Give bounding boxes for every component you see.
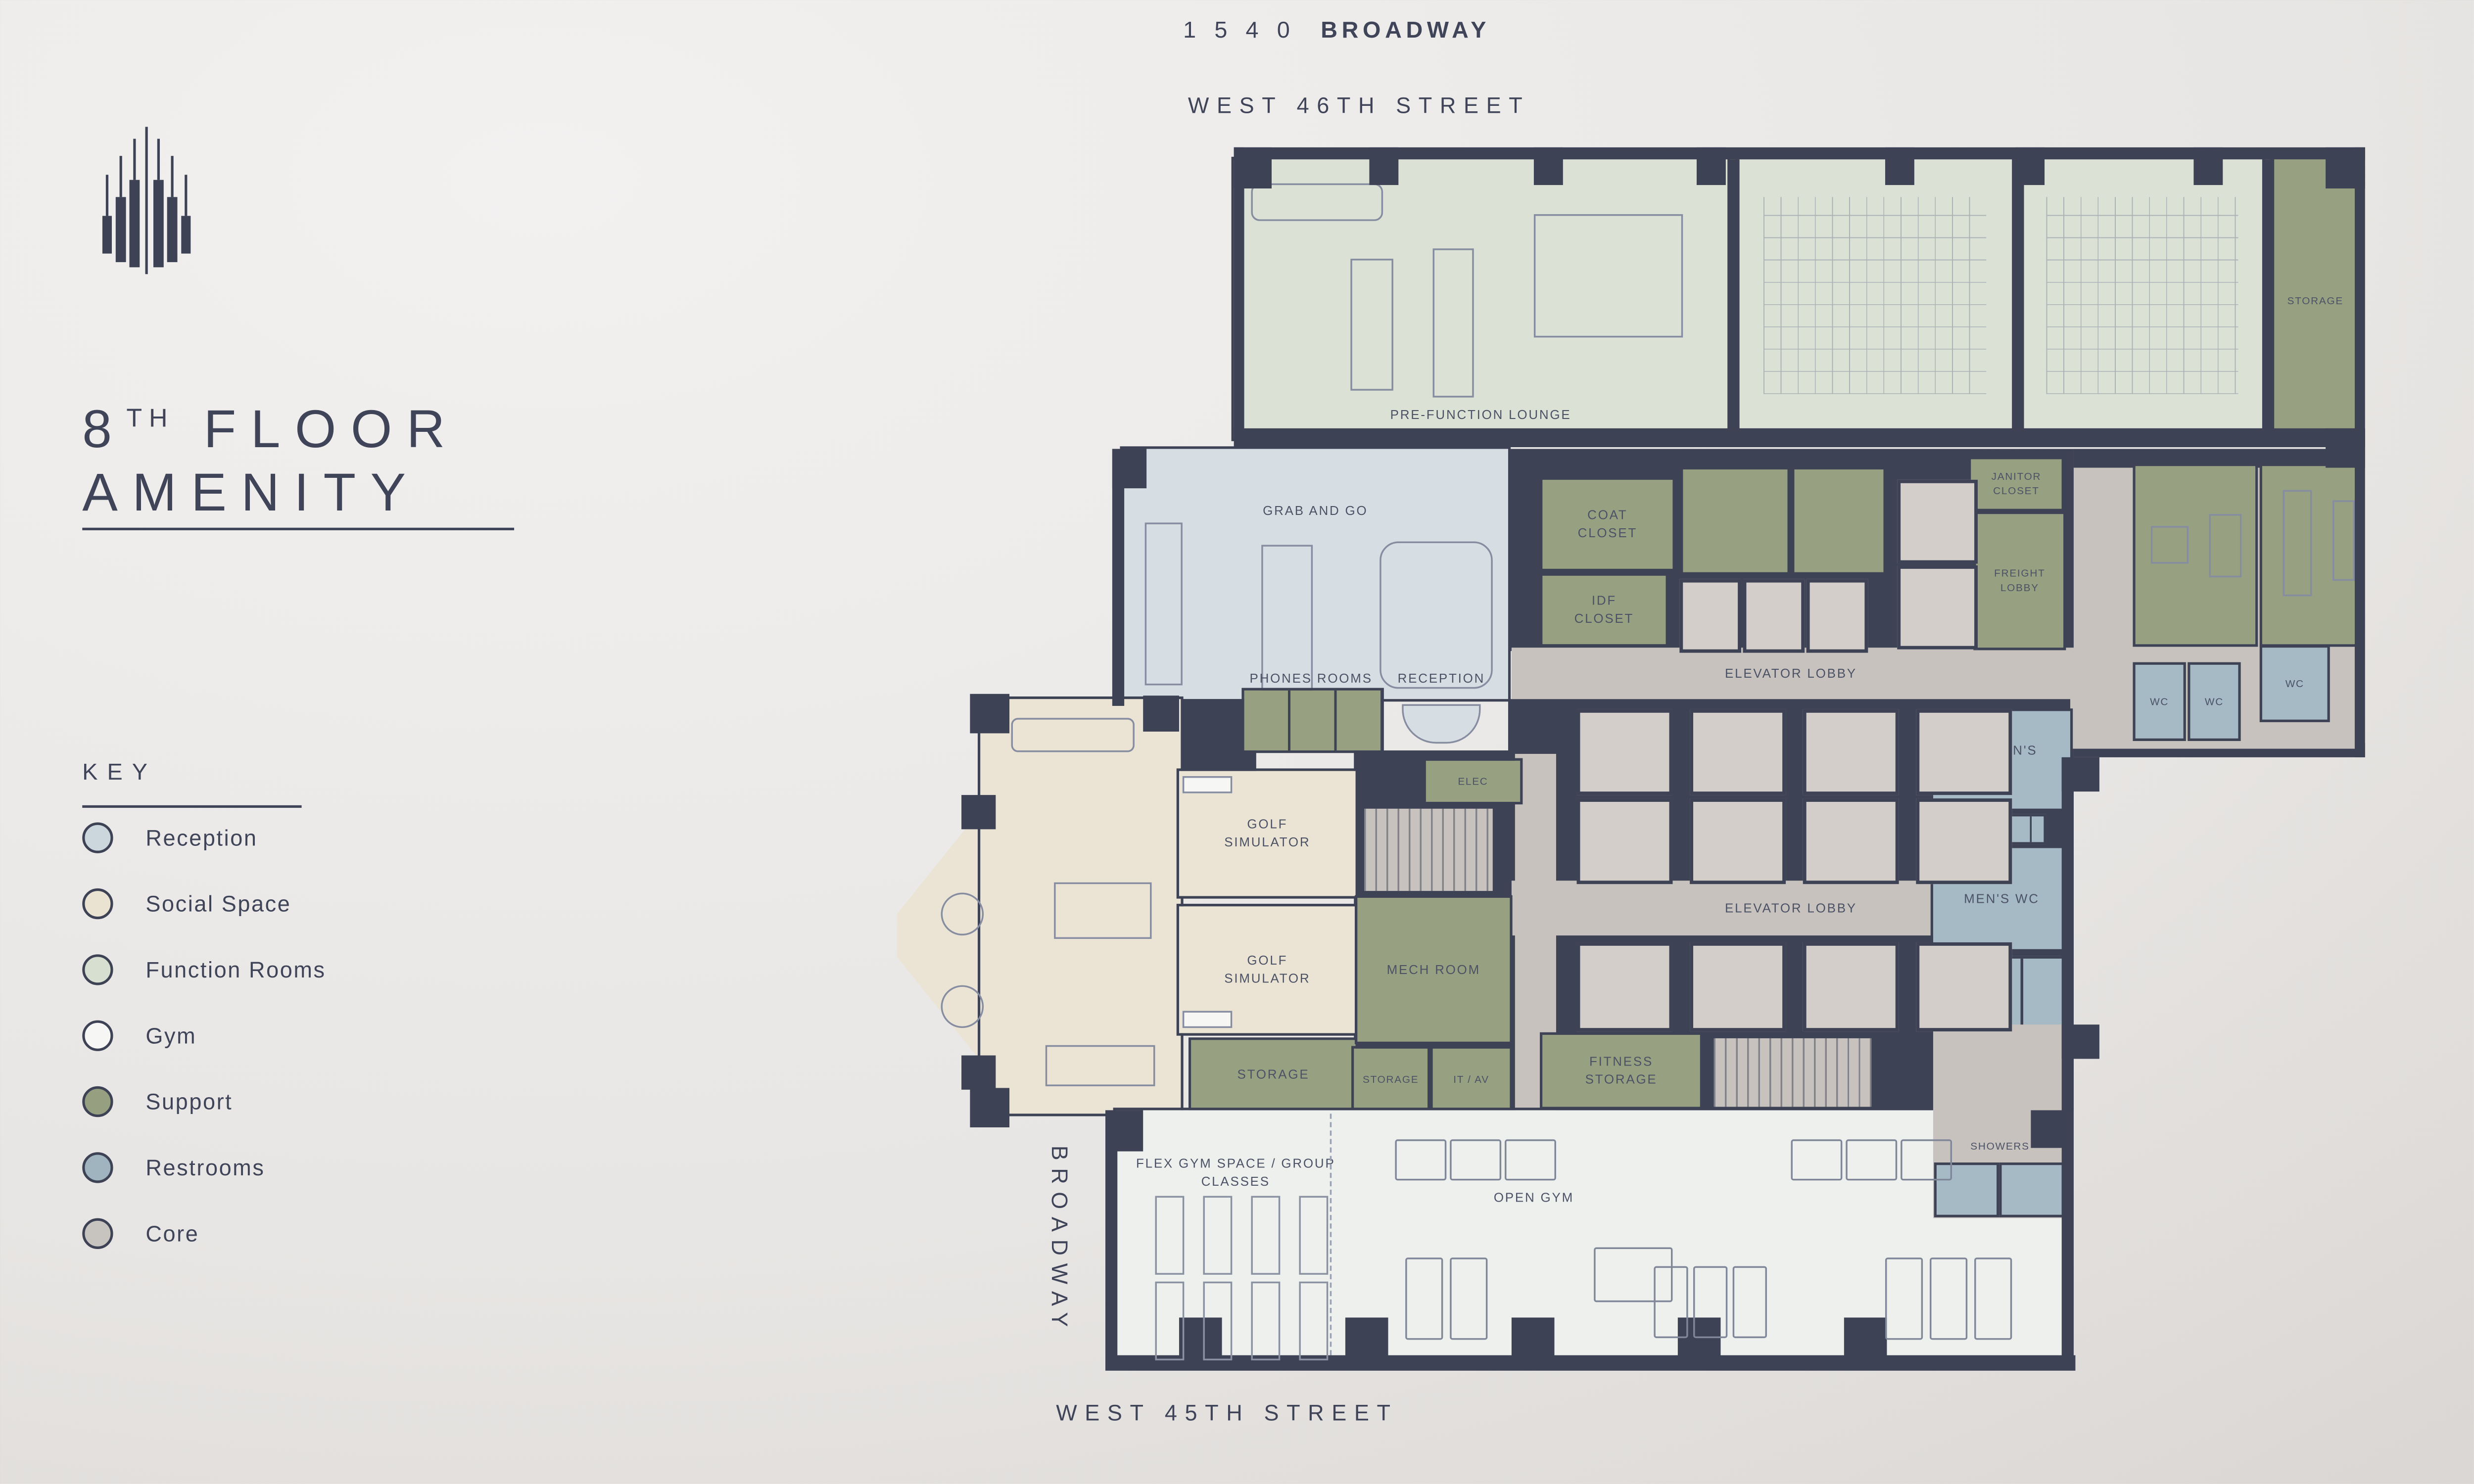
column: [961, 1056, 996, 1090]
gym-equipment: [1450, 1139, 1501, 1180]
stairs-upper: [1364, 809, 1493, 891]
room-label-mech-room: MECH ROOM: [1386, 961, 1480, 978]
gym-equipment: [1901, 1139, 1952, 1180]
room-it-av: IT / AV: [1433, 1049, 1510, 1111]
room-storage-small: STORAGE: [1354, 1049, 1427, 1111]
room-label-janitor-closet: JANITOR CLOSET: [1978, 469, 2055, 498]
column: [970, 1088, 1009, 1127]
page-title-line2: AMENITY: [82, 462, 460, 525]
wall-segment: [2012, 159, 2024, 430]
room-storage-social: STORAGE: [1191, 1040, 1356, 1109]
room-function-room-1: [1738, 159, 2012, 428]
gym-mat: [1155, 1282, 1184, 1360]
furniture-round-table: [941, 893, 984, 936]
furniture-lounge-seating: [1380, 541, 1493, 689]
column: [1369, 147, 1398, 185]
room-golf-simulator-1: GOLF SIMULATOR: [1179, 771, 1356, 896]
room-label-golf-simulator-1: GOLF SIMULATOR: [1216, 816, 1319, 852]
golf-screen: [1183, 1011, 1232, 1028]
room-label-pre-function-lounge: PRE-FUNCTION LOUNGE: [1374, 406, 1588, 424]
elevator-car: [1807, 579, 1868, 653]
floor-word: FLOOR: [204, 400, 460, 459]
elevator-car: [1916, 798, 2012, 884]
room-grab-and-go: GRAB AND GO: [1123, 449, 1508, 699]
furniture-cabinet: [2209, 514, 2242, 577]
elevator-car: [1743, 579, 1805, 653]
gym-equipment: [1930, 1257, 1967, 1340]
key-swatch-reception: [82, 823, 113, 853]
room-fitness-storage: FITNESS STORAGE: [1542, 1035, 1700, 1107]
column: [1512, 1318, 1555, 1357]
room-pre-function-lounge: PRE-FUNCTION LOUNGE: [1234, 159, 1728, 439]
key-swatch-social-space: [82, 888, 113, 919]
address-number: 1 5 4 0: [1183, 17, 1296, 43]
room-wc-3: WC: [2262, 648, 2328, 719]
stairs-lower: [1714, 1038, 1872, 1107]
furniture-reception-desk: [1402, 704, 1480, 744]
gym-equipment: [1654, 1266, 1688, 1338]
page-title: 8TH FLOOR AMENITY: [82, 387, 460, 525]
elevator-car: [1803, 798, 1899, 884]
gym-equipment: [1885, 1257, 1923, 1340]
room-coat-closet: COAT CLOSET: [1542, 480, 1672, 569]
furniture-table: [1054, 882, 1151, 939]
gym-equipment: [1395, 1139, 1446, 1180]
room-label-flex-gym: FLEX GYM SPACE / GROUP CLASSES: [1133, 1155, 1338, 1191]
column: [1105, 1110, 1143, 1151]
wall-segment: [2062, 757, 2074, 1369]
building-logo-icon: [82, 127, 211, 281]
elevator-car: [1803, 709, 1899, 795]
room-label-wc-1: WC: [2150, 695, 2169, 709]
gym-equipment: [1693, 1266, 1727, 1338]
room-label-mens-wc: MEN'S WC: [1959, 889, 2045, 907]
column: [2015, 147, 2045, 185]
room-label-storage-top: STORAGE: [2287, 293, 2343, 308]
elevator-car: [1690, 942, 1786, 1031]
room-label-open-gym: OPEN GYM: [1448, 1189, 1619, 1207]
room-label-golf-simulator-2: GOLF SIMULATOR: [1216, 952, 1319, 988]
gym-mat: [1299, 1196, 1328, 1275]
gym-mat: [1203, 1282, 1232, 1360]
wall-segment: [1234, 147, 1244, 449]
corridor-elevator-lobby-upper: ELEVATOR LOBBY: [1512, 648, 2070, 699]
room-label-fitness-storage: FITNESS STORAGE: [1574, 1053, 1668, 1089]
room-wc-1: WC: [2136, 665, 2184, 739]
room-shower-2: [2001, 1165, 2061, 1214]
elevator-car: [1679, 579, 1741, 653]
furniture-counter: [2332, 500, 2355, 581]
gym-divider: [1330, 1113, 1332, 1355]
room-elec: ELEC: [1426, 761, 1520, 802]
key-underline: [82, 805, 301, 808]
wall-segment: [1727, 428, 2365, 447]
gym-mat: [1251, 1282, 1280, 1360]
room-label-reception: RECEPTION: [1356, 670, 1527, 688]
gym-equipment: [1733, 1266, 1767, 1338]
column: [2062, 1024, 2099, 1059]
room-label-freight-lobby: FREIGHT LOBBY: [1986, 566, 2054, 595]
column: [1844, 1318, 1887, 1357]
wall-segment: [1234, 428, 1731, 447]
column: [2326, 147, 2365, 188]
room-golf-simulator-2: GOLF SIMULATOR: [1179, 906, 1356, 1033]
key-swatch-function-rooms: [82, 954, 113, 985]
room-label-coat-closet: COAT CLOSET: [1569, 506, 1646, 542]
elevator-car: [1803, 942, 1899, 1031]
room-mech: MECH ROOM: [1357, 898, 1510, 1042]
elevator-car: [1690, 709, 1786, 795]
building-address: 1 5 4 0 BROADWAY: [994, 17, 1679, 44]
key-label: Core: [145, 1220, 199, 1247]
floor-ordinal: TH: [126, 404, 174, 432]
elevator-car: [1577, 709, 1673, 795]
room-storage-top: STORAGE: [2273, 159, 2358, 442]
title-underline: [82, 528, 514, 530]
gym-equipment: [1450, 1257, 1487, 1340]
room-janitor-closet: JANITOR CLOSET: [1971, 459, 2062, 509]
gym-equipment: [1974, 1257, 2012, 1340]
key-label: Reception: [145, 825, 257, 851]
furniture-bar: [1251, 184, 1383, 221]
page-title-line1: 8TH FLOOR: [82, 387, 460, 462]
key-label: Support: [145, 1088, 233, 1115]
column: [2062, 757, 2099, 791]
address-name: BROADWAY: [1321, 17, 1490, 43]
room-freight-lobby: FREIGHT LOBBY: [1976, 514, 2064, 648]
room-label-elevator-lobby-lower: ELEVATOR LOBBY: [1705, 899, 1876, 917]
key-item-reception: Reception: [82, 823, 257, 853]
column: [2031, 1110, 2065, 1148]
column: [1143, 696, 1179, 732]
gym-equipment: [1405, 1257, 1443, 1340]
gym-equipment: [1791, 1139, 1842, 1180]
floor-number: 8: [82, 400, 126, 459]
column: [970, 694, 1009, 734]
column: [1112, 449, 1146, 488]
room-label-idf-closet: IDF CLOSET: [1566, 592, 1643, 628]
room-label-elec: ELEC: [1458, 774, 1488, 788]
room-label-grab-and-go: GRAB AND GO: [1204, 502, 1427, 520]
gym-mat: [1299, 1282, 1328, 1360]
furniture-counter: [2283, 490, 2312, 597]
room-label-storage-social: STORAGE: [1237, 1065, 1309, 1083]
column: [2326, 428, 2365, 468]
elevator-car: [1916, 709, 2012, 795]
elevator-car: [1897, 565, 1978, 649]
key-item-social-space: Social Space: [82, 888, 291, 919]
key-label: Social Space: [145, 890, 291, 917]
room-support-a: [1683, 469, 1787, 572]
room-pantry: [2262, 466, 2362, 644]
key-label: Gym: [145, 1022, 196, 1049]
room-phones-rooms: [1244, 691, 1381, 750]
key-item-gym: Gym: [82, 1020, 196, 1051]
key-swatch-core: [82, 1218, 113, 1249]
room-social-space-bay-window: [891, 802, 987, 1069]
key-label: Restrooms: [145, 1155, 265, 1181]
wall-segment: [2074, 449, 2362, 467]
furniture-counter: [1145, 522, 1183, 685]
room-label-it-av: IT / AV: [1453, 1072, 1489, 1087]
furniture-table: [1433, 248, 1474, 397]
key-item-support: Support: [82, 1086, 233, 1117]
wall-segment: [1727, 159, 1739, 430]
gym-equipment: [1505, 1139, 1556, 1180]
furniture-round-table: [941, 985, 984, 1028]
gym-mat: [1203, 1196, 1232, 1275]
room-social-space: [980, 699, 1181, 1113]
room-label-wc-2: WC: [2205, 695, 2224, 709]
column: [2193, 147, 2223, 185]
elevator-car: [1897, 480, 1978, 564]
room-function-room-2: [2022, 159, 2262, 428]
column: [1234, 147, 1272, 188]
key-title: KEY: [82, 759, 157, 786]
elevator-car: [1577, 942, 1673, 1031]
room-wc-2: WC: [2190, 665, 2238, 739]
key-swatch-gym: [82, 1020, 113, 1051]
elevator-car: [1577, 798, 1673, 884]
furniture-seating-rows: [1763, 197, 1986, 394]
column: [1345, 1318, 1388, 1357]
furniture-table: [2151, 526, 2189, 563]
street-label-west-45th: WEST 45TH STREET: [970, 1400, 1484, 1427]
column: [1885, 147, 1914, 185]
gym-equipment: [1846, 1139, 1897, 1180]
room-idf-closet: IDF CLOSET: [1542, 576, 1665, 645]
key-label: Function Rooms: [145, 957, 326, 983]
gym-mat: [1251, 1196, 1280, 1275]
key-item-core: Core: [82, 1218, 199, 1249]
golf-screen: [1183, 776, 1232, 793]
key-item-function-rooms: Function Rooms: [82, 954, 326, 985]
column: [1697, 147, 1726, 185]
furniture-communal-table: [1261, 545, 1313, 690]
column: [1534, 147, 1563, 185]
gym-mat: [1155, 1196, 1184, 1275]
furniture-sofa-group: [1534, 214, 1683, 337]
furniture-table: [1350, 259, 1393, 391]
elevator-car: [1690, 798, 1786, 884]
room-label-wc-3: WC: [2285, 676, 2304, 691]
room-support-b: [1794, 469, 1883, 572]
column: [961, 795, 996, 829]
furniture-seating-rows: [2046, 197, 2238, 394]
key-item-restrooms: Restrooms: [82, 1152, 265, 1183]
room-label-storage-small: STORAGE: [1363, 1072, 1419, 1087]
furniture-dining-table: [1046, 1045, 1155, 1086]
street-label-broadway: BROADWAY: [1046, 1112, 1073, 1369]
key-swatch-support: [82, 1086, 113, 1117]
room-meeting: [2136, 466, 2255, 644]
wall-segment: [2262, 159, 2274, 442]
furniture-sofa: [1011, 718, 1135, 752]
key-swatch-restrooms: [82, 1152, 113, 1183]
page-canvas: 1 5 4 0 BROADWAY 8TH FLOOR AMENITY KEY R…: [0, 0, 2474, 1484]
elevator-car: [1916, 942, 2012, 1031]
street-label-west-46th: WEST 46TH STREET: [1102, 93, 1616, 119]
room-label-elevator-lobby-upper: ELEVATOR LOBBY: [1705, 664, 1876, 682]
